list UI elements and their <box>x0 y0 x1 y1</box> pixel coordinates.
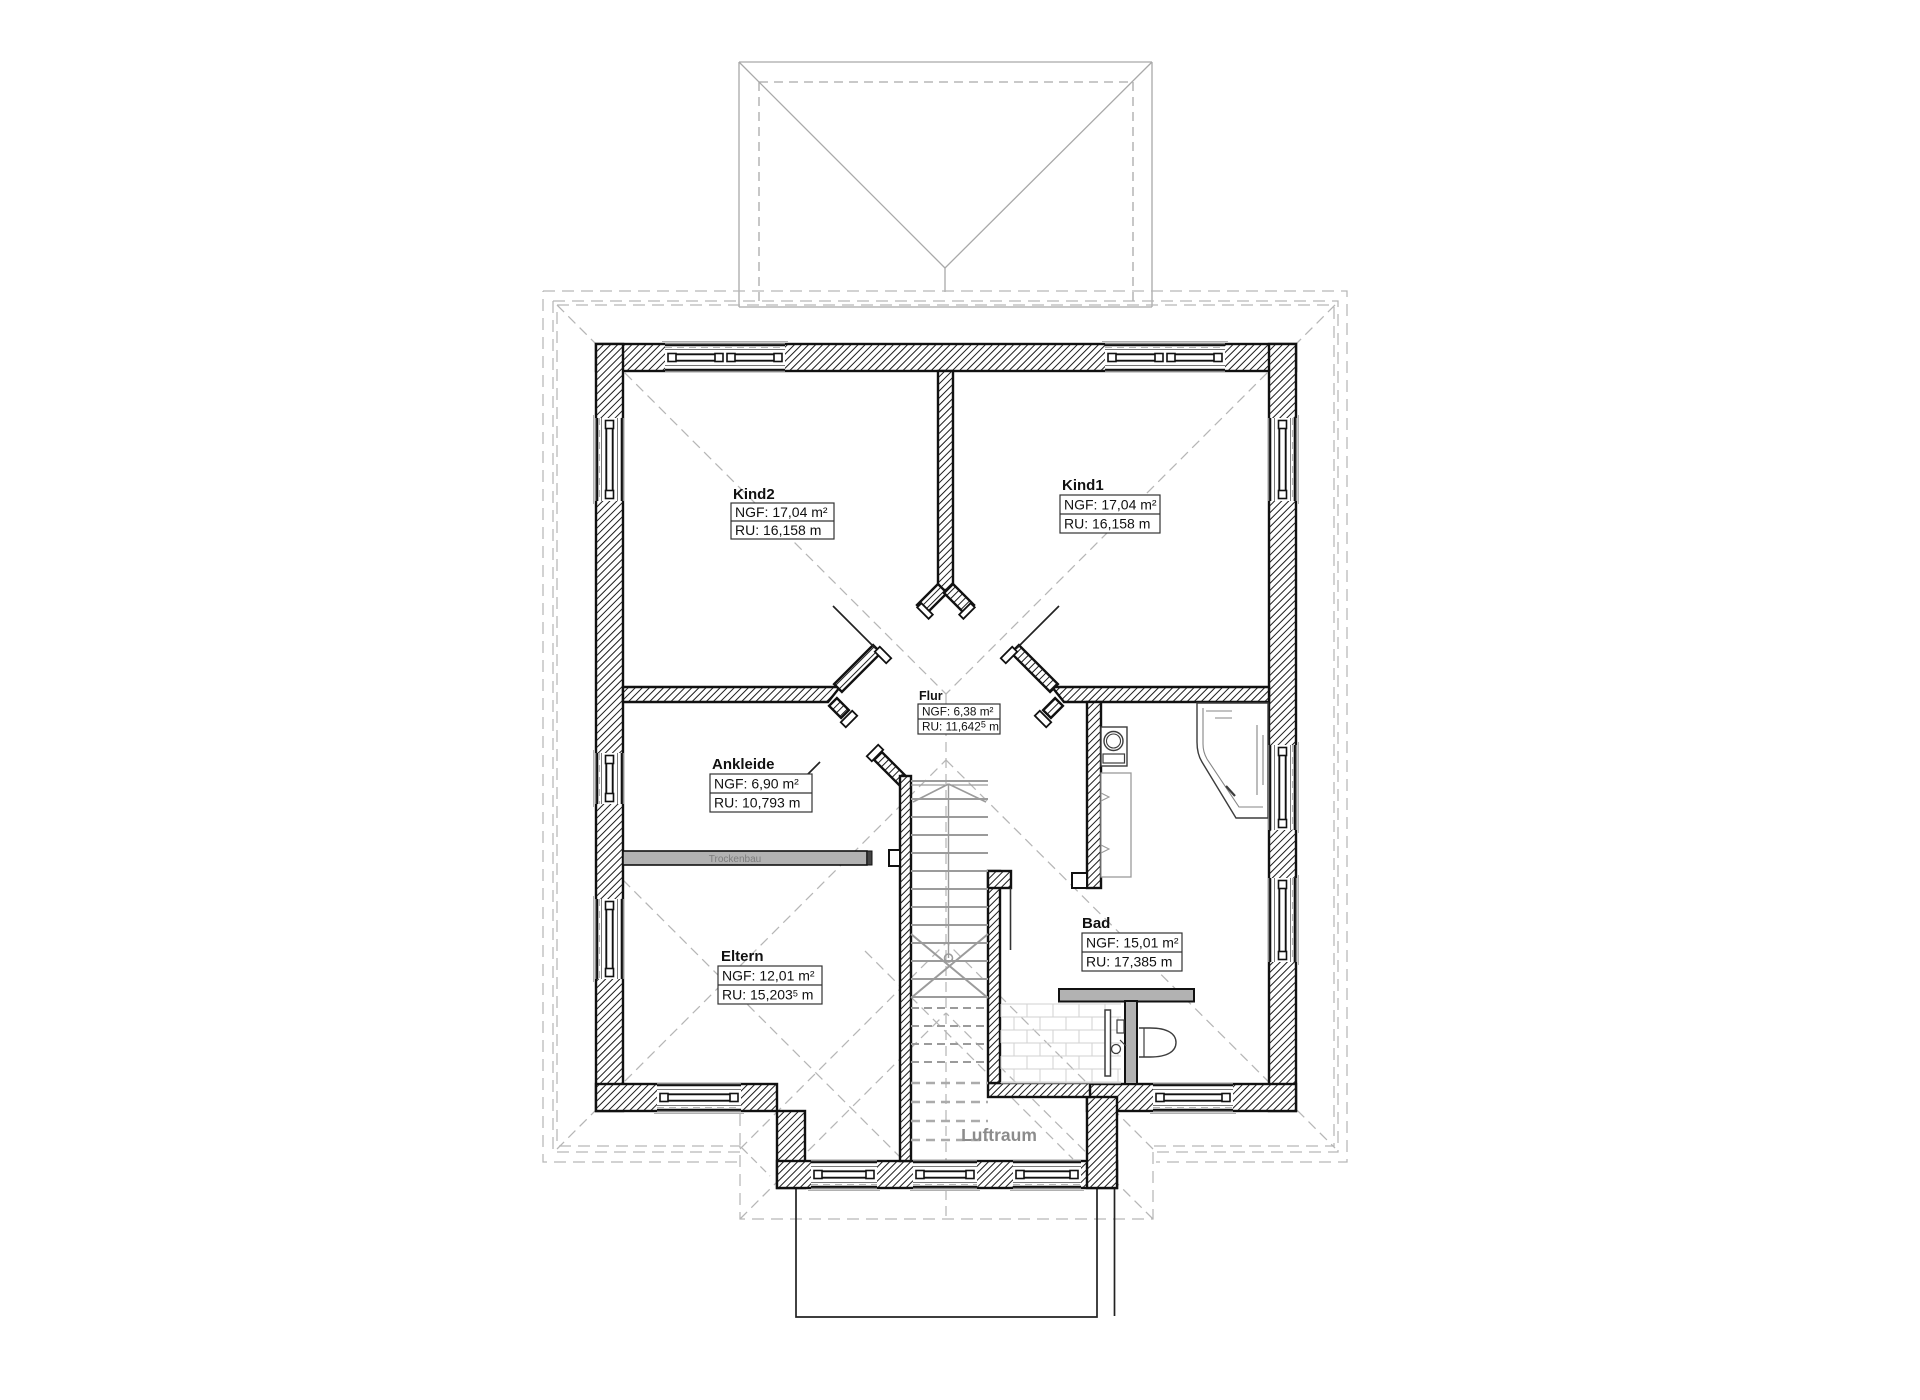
svg-text:Trockenbau: Trockenbau <box>709 854 761 865</box>
svg-text:NGF: 15,01 m²: NGF: 15,01 m² <box>1086 935 1179 951</box>
svg-text:RU: 11,6425 m: RU: 11,6425 m <box>922 720 999 734</box>
svg-text:Ankleide: Ankleide <box>712 756 775 773</box>
svg-text:RU: 17,385 m: RU: 17,385 m <box>1086 954 1172 970</box>
svg-text:NGF: 12,01 m²: NGF: 12,01 m² <box>722 968 815 984</box>
svg-text:NGF: 6,38 m²: NGF: 6,38 m² <box>922 705 994 719</box>
svg-text:RU: 16,158 m: RU: 16,158 m <box>735 522 821 538</box>
svg-text:RU: 15,2035 m: RU: 15,2035 m <box>722 987 813 1003</box>
svg-text:RU: 10,793 m: RU: 10,793 m <box>714 795 800 811</box>
svg-text:Luftraum: Luftraum <box>961 1125 1037 1145</box>
svg-text:NGF: 17,04 m²: NGF: 17,04 m² <box>735 504 828 520</box>
svg-text:RU: 16,158 m: RU: 16,158 m <box>1064 516 1150 532</box>
svg-text:Bad: Bad <box>1082 915 1110 932</box>
svg-text:NGF: 6,90 m²: NGF: 6,90 m² <box>714 776 799 792</box>
svg-text:NGF: 17,04 m²: NGF: 17,04 m² <box>1064 497 1157 513</box>
svg-text:Kind2: Kind2 <box>733 486 775 503</box>
svg-text:Eltern: Eltern <box>721 948 764 965</box>
svg-text:Flur: Flur <box>919 689 943 703</box>
svg-text:Kind1: Kind1 <box>1062 477 1104 494</box>
